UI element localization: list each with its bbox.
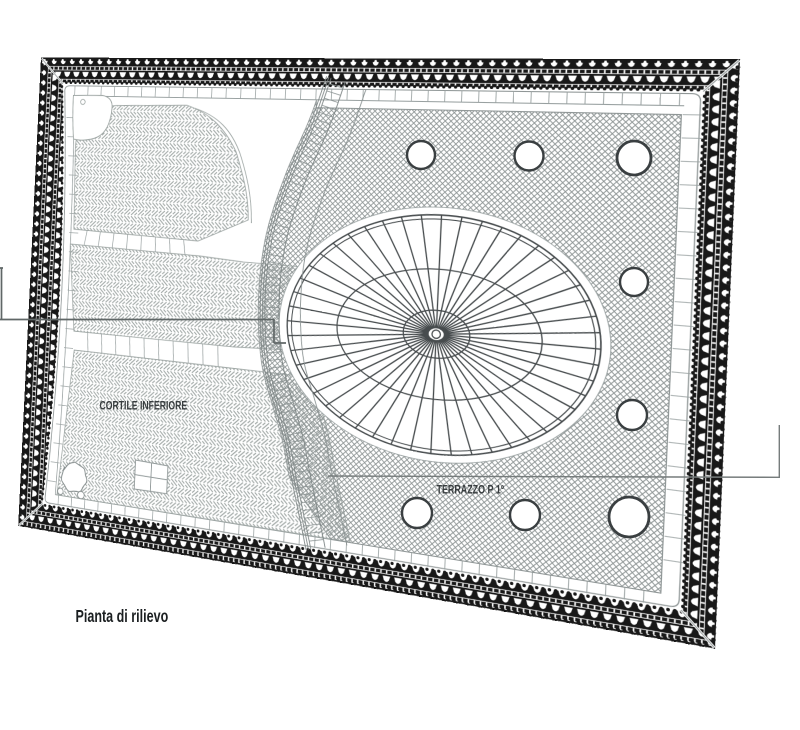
svg-text:CORTILE INFERIORE: CORTILE INFERIORE [100, 399, 188, 413]
svg-text:TERRAZZO P 1°: TERRAZZO P 1° [437, 483, 505, 497]
svg-text:Pianta di rilievo: Pianta di rilievo [76, 607, 169, 626]
